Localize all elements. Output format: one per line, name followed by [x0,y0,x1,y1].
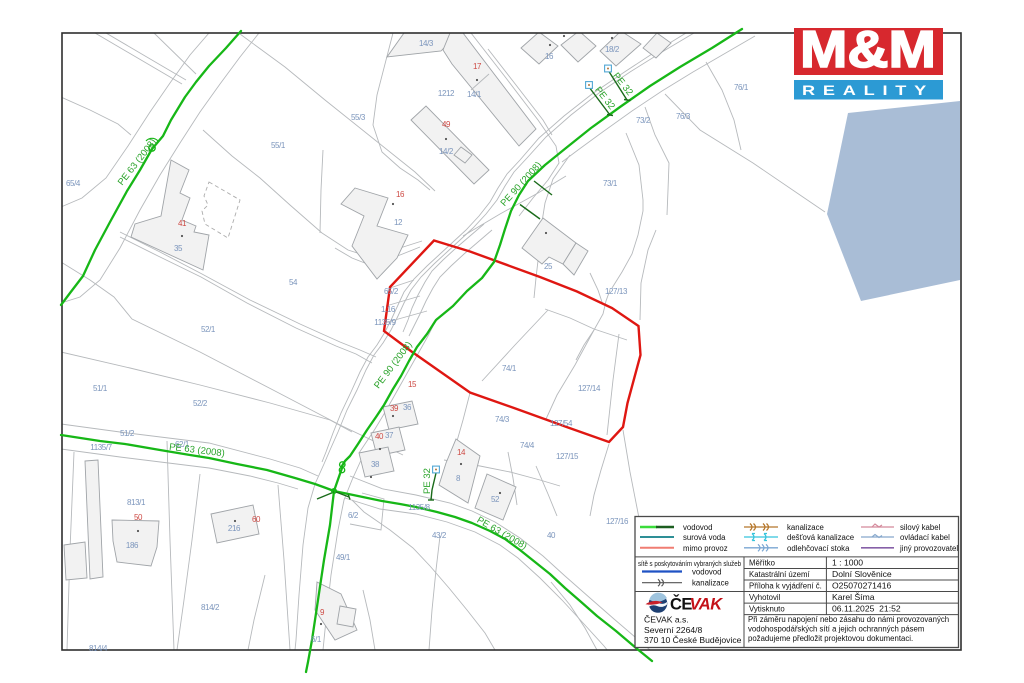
svg-text:Měřítko: Měřítko [749,559,776,568]
svg-text:50: 50 [134,513,143,522]
svg-text:Karel Šíma: Karel Šíma [832,592,875,602]
svg-text:65/2: 65/2 [384,287,399,296]
svg-text:51/2: 51/2 [120,429,135,438]
svg-text:Severní 2264/8: Severní 2264/8 [644,625,703,635]
svg-text:74/1: 74/1 [502,364,517,373]
svg-text:36: 36 [403,403,412,412]
svg-text:127/15: 127/15 [556,452,579,461]
svg-text:ovládací kabel: ovládací kabel [900,533,950,542]
svg-text:52: 52 [491,495,500,504]
svg-text:73/1: 73/1 [603,179,618,188]
svg-text:sítě s poskytováním vybraných: sítě s poskytováním vybraných služeb [638,559,741,568]
svg-text:6/1: 6/1 [311,635,322,644]
svg-text:kanalizace: kanalizace [692,579,729,588]
svg-text:1 : 1000: 1 : 1000 [832,558,863,568]
svg-text:14: 14 [457,448,466,457]
svg-text:25: 25 [544,262,553,271]
svg-text:1212: 1212 [438,89,455,98]
svg-text:813/1: 813/1 [127,498,146,507]
svg-text:18/2: 18/2 [605,45,620,54]
svg-text:6/2: 6/2 [348,511,359,520]
svg-text:odlehčovací stoka: odlehčovací stoka [787,544,850,553]
svg-text:127/16: 127/16 [606,517,629,526]
svg-text:14/1: 14/1 [467,90,482,99]
svg-text:Katastrální území: Katastrální území [749,570,811,579]
svg-text:38: 38 [371,460,380,469]
svg-text:O25070271416: O25070271416 [832,581,891,591]
svg-text:mimo provoz: mimo provoz [683,544,728,553]
svg-text:14/2: 14/2 [439,147,454,156]
svg-text:dešťová kanalizace: dešťová kanalizace [787,533,854,542]
svg-text:1135/9: 1135/9 [374,318,396,327]
svg-text:52/2: 52/2 [193,399,208,408]
svg-text:74/4: 74/4 [520,441,535,450]
svg-text:Vyhotovil: Vyhotovil [749,593,781,602]
svg-text:73/2: 73/2 [636,116,651,125]
svg-text:silový kabel: silový kabel [900,523,941,532]
svg-text:požadujeme předložit projektov: požadujeme předložit projektovou dokumen… [748,634,913,643]
svg-text:76/1: 76/1 [734,83,749,92]
svg-text:39: 39 [390,404,399,413]
svg-text:127/13: 127/13 [605,287,628,296]
svg-text:37: 37 [385,431,394,440]
svg-text:370 10 České Budějovice: 370 10 České Budějovice [644,635,742,645]
svg-text:Při záměru napojení nebo zásah: Při záměru napojení nebo zásahu do námi … [748,615,949,624]
svg-text:41: 41 [178,219,187,228]
svg-text:Dolní Slověnice: Dolní Slověnice [832,569,892,579]
svg-text:vodovod: vodovod [683,523,712,532]
svg-text:16: 16 [396,190,405,199]
svg-text:35: 35 [174,244,183,253]
svg-text:vodovod: vodovod [692,568,721,577]
svg-text:43/2: 43/2 [432,531,447,540]
svg-text:76/3: 76/3 [676,112,691,121]
svg-text:surová voda: surová voda [683,533,726,542]
svg-text:jiný provozovatel: jiný provozovatel [899,544,958,553]
svg-text:16: 16 [545,52,554,61]
svg-text:74/3: 74/3 [495,415,510,424]
svg-text:Příloha k vyjádření č.: Příloha k vyjádření č. [749,582,822,591]
svg-text:1.16: 1.16 [381,305,396,314]
svg-text:REALITY: REALITY [802,82,934,98]
svg-text:127/14: 127/14 [578,384,601,393]
svg-text:kanalizace: kanalizace [787,523,824,532]
svg-text:ČEVAK a.s.: ČEVAK a.s. [644,614,689,624]
svg-text:15: 15 [408,380,417,389]
svg-text:06.11.2025 21:52: 06.11.2025 21:52 [832,604,901,614]
svg-text:1135/7: 1135/7 [90,443,112,452]
svg-text:54: 54 [289,278,298,287]
svg-text:PE 32: PE 32 [422,468,433,494]
svg-text:814/2: 814/2 [201,603,220,612]
svg-text:51/1: 51/1 [93,384,108,393]
svg-text:M&M: M&M [800,21,936,79]
svg-text:60: 60 [252,515,261,524]
svg-text:216: 216 [228,524,241,533]
svg-text:814/4: 814/4 [89,644,108,653]
svg-text:65/4: 65/4 [66,179,81,188]
svg-text:49/1: 49/1 [336,553,351,562]
svg-text:14/3: 14/3 [419,39,434,48]
svg-text:40: 40 [375,432,384,441]
svg-text:VAK: VAK [690,596,724,614]
svg-text:127/54: 127/54 [550,419,573,428]
svg-text:12: 12 [394,218,403,227]
svg-text:Vytisknuto: Vytisknuto [749,605,785,614]
svg-text:55/3: 55/3 [351,113,366,122]
svg-text:186: 186 [126,541,139,550]
svg-text:vodohospodářských sítí a jejic: vodohospodářských sítí a jejich ochranný… [748,625,924,634]
svg-text:1135/8: 1135/8 [408,503,430,512]
svg-text:49: 49 [442,120,451,129]
svg-text:52/1: 52/1 [201,325,216,334]
svg-text:17: 17 [473,62,482,71]
svg-text:55/1: 55/1 [271,141,286,150]
svg-text:40: 40 [547,531,556,540]
